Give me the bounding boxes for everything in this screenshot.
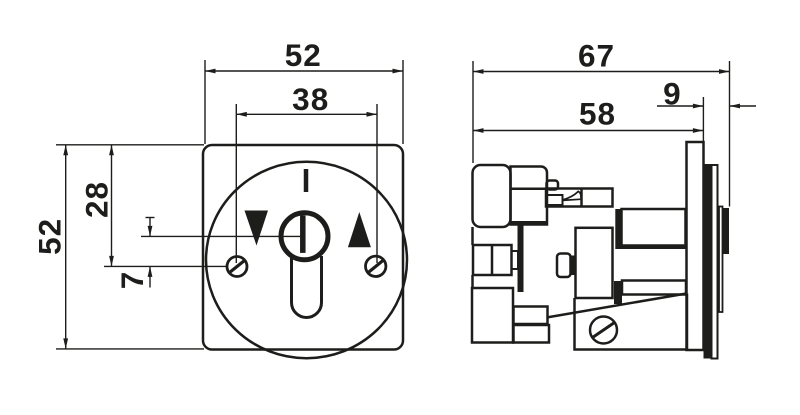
svg-text:9: 9	[663, 76, 682, 112]
svg-text:7: 7	[114, 271, 150, 290]
svg-text:52: 52	[285, 37, 322, 73]
svg-text:58: 58	[579, 95, 616, 131]
svg-text:52: 52	[31, 218, 67, 255]
svg-text:67: 67	[578, 38, 615, 74]
svg-text:38: 38	[292, 81, 329, 117]
svg-text:28: 28	[79, 181, 115, 218]
